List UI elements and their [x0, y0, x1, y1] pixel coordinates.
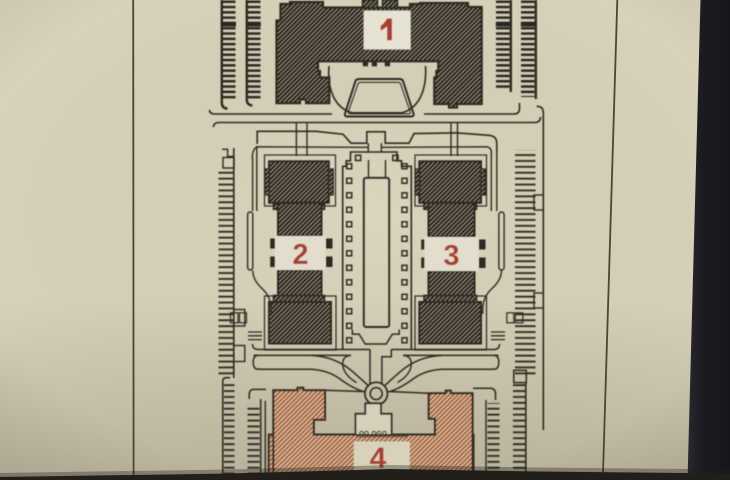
svg-text:2: 2	[292, 239, 308, 271]
svg-text:3: 3	[443, 240, 459, 272]
